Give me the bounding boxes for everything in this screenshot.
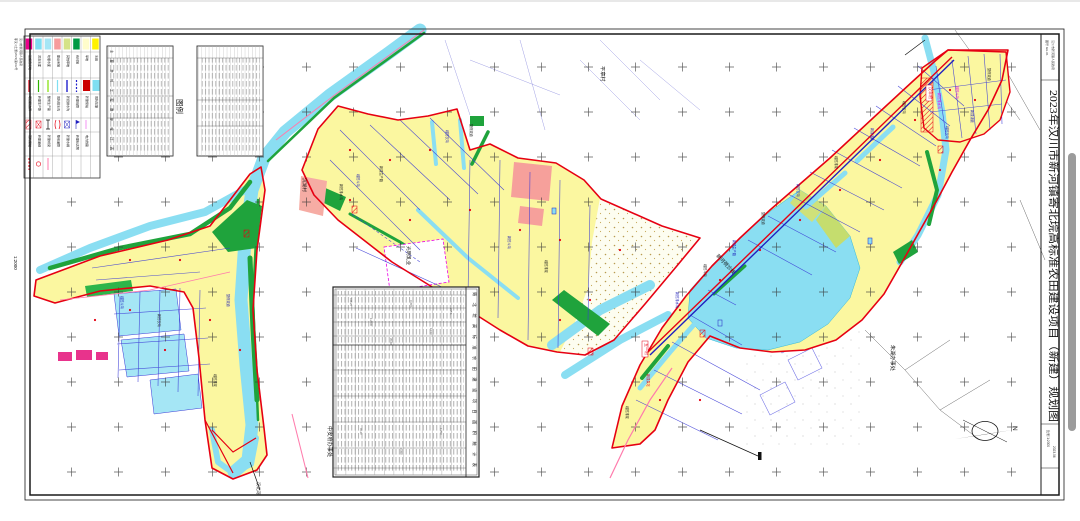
village-label: 五一村 (644, 343, 650, 355)
map-label: 新建泵站 (646, 374, 651, 388)
map-label: 疏挖斗沟 (955, 86, 960, 99)
legend-label: 新建标志牌 (76, 135, 81, 150)
legend-label: 河流水面 (38, 55, 43, 67)
north-label: N (1011, 426, 1018, 431)
legend-rect (93, 80, 100, 91)
map-label: 光明乳业 (405, 246, 412, 265)
map-label: 整修渠道 (226, 294, 231, 308)
map-label: 1:2000 (369, 318, 373, 326)
map-label: 446.25 (349, 298, 353, 306)
map-label: 疏挖农沟 (445, 130, 450, 143)
map-label: 新建涵管 (870, 128, 875, 141)
map-label: 疏挖排渠 (834, 156, 839, 170)
map-label: 35.60 (389, 338, 393, 345)
village-label: 汉丰村 (928, 87, 934, 99)
legend-label: 水田 (95, 55, 100, 61)
legend-label: 现状排水沟 (57, 96, 62, 111)
legend-label: 新建暗管 (76, 96, 81, 108)
date-note: 2023.06 (1052, 446, 1056, 458)
unit-note: 汉川市新河镇人民政府 (1051, 40, 1056, 70)
map-label: 新挖农沟 (157, 314, 162, 327)
legend-title-vertical: 图例 (175, 99, 185, 114)
map-label: 新挖农沟 (796, 184, 801, 197)
map-label: 新挖排水沟 (937, 93, 942, 109)
legend-label: 现状坑塘 (95, 96, 100, 108)
map-label: 0.350 (399, 448, 403, 455)
map-label: 45.20 (359, 428, 363, 435)
legend-label: 新挖排水沟 (66, 96, 71, 111)
legend-label: 整修生产路 (47, 96, 52, 111)
legend-label: 有林地 (76, 55, 81, 64)
legend-swatch (64, 39, 70, 50)
map-label: 1.250 (439, 428, 443, 435)
map-label: 疏挖排渠 (213, 374, 218, 388)
map-label: 0.35% (409, 300, 413, 308)
legend-label: 其他草地 (66, 55, 71, 67)
legend-label: 电力线路 (85, 135, 90, 147)
mid-table: 寄北垸高标准农田建设项目面积统计表 (333, 287, 479, 477)
map-label: 沉湖村 (301, 178, 308, 192)
legend-label: 新建涵闸 (38, 135, 43, 147)
map-label: 疏挖排渠 (544, 260, 549, 274)
map-label: 12.50 (429, 328, 433, 335)
legend-label: 新建桥梁 (47, 135, 52, 147)
scale-text: 比例 1:2000 (1046, 430, 1051, 447)
legend-rect (83, 80, 90, 91)
margin-annotations: 鄂汉川土整(2023)第012号 汉川市新河镇人民政府 1:2000 (13, 38, 23, 270)
map-label: 疏挖农沟 (902, 101, 907, 114)
legend-label: 旱地 (85, 55, 90, 61)
map-label: 235.6 (449, 308, 453, 315)
map-label: 疏挖斗沟 (703, 264, 708, 277)
legend-label: 新建水闸 (66, 135, 71, 147)
legend-swatch (45, 39, 52, 50)
legend-swatch (35, 39, 42, 50)
planning-map-canvas: 主要单体工程数量统计表 图例 寄北垸高标准农田建设项目面积统计表 (0, 0, 1080, 521)
map-label: 新挖斗沟 (507, 236, 512, 249)
map-label: 疏挖斗沟 (356, 174, 361, 187)
sheet-title: 2023年汉川市新河镇寄北垸高标准农田建设项目（新建）规划图 (1047, 90, 1060, 422)
map-label: 新建生产路 (732, 240, 737, 257)
map-label: 疏挖排渠 (625, 406, 630, 420)
legend-label: 建设用地 (57, 55, 62, 67)
scrollbar-thumb[interactable] (1068, 153, 1076, 431)
map-label: 疏挖斗沟 (120, 296, 125, 309)
map-label: 疏挖农沟 (945, 126, 950, 139)
map-label: 整修渠道 (469, 124, 474, 138)
top-table-b (197, 46, 263, 156)
legend-swatch (26, 39, 33, 50)
legend-swatch (83, 39, 90, 50)
scale-note: 1:2000 (13, 256, 18, 270)
legend-label: 整修涵管 (57, 135, 62, 147)
legend-swatch (54, 39, 61, 50)
archive-note: 鄂汉川土整(2023)第012号 (14, 38, 18, 71)
legend-swatch (92, 39, 99, 50)
legend-swatch (73, 39, 80, 50)
drawing-number: 图号 GH-01 (1045, 40, 1050, 56)
legend-label: 新建泵站 (85, 96, 90, 108)
map-label: 朱湖办事处 (889, 345, 897, 371)
map-label: 平章村 (599, 66, 607, 82)
title-strip: 2023年汉川市新河镇寄北垸高标准农田建设项目（新建）规划图 图号 GH-01 … (1045, 40, 1060, 458)
legend-label: 新建生产路 (38, 96, 43, 111)
map-label: 新挖排水沟 (675, 292, 680, 308)
map-label: 新挖排水沟 (339, 184, 344, 200)
map-label: 新建生产路 (379, 166, 384, 183)
map-label: 整修渠道 (987, 68, 992, 82)
map-label: 新建涵管 (970, 110, 975, 123)
map-label: 汉北河 (255, 482, 262, 495)
map-label: 整修渠道 (761, 212, 766, 226)
legend: 设施农用地 河流水面 坑塘水面 建设用地 其他草地 有林地 旱地 水田 项目区边… (24, 36, 100, 178)
unit-note-left: 汉川市新河镇人民政府 (19, 38, 23, 66)
legend-label: 坑塘水面 (47, 55, 52, 67)
flag-marker (758, 452, 762, 460)
top-table-a: 主要单体工程数量统计表 (107, 46, 173, 156)
map-label: 中安府办事处 (326, 426, 334, 457)
